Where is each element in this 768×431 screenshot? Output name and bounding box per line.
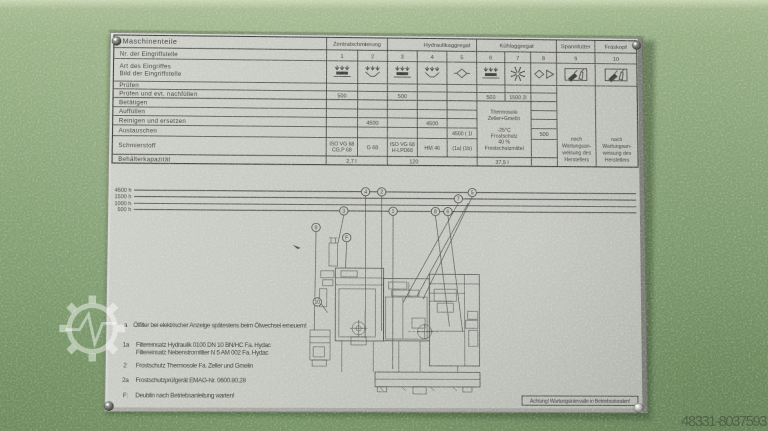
svg-text:7: 7 (457, 197, 460, 203)
svg-text:1500 h: 1500 h (115, 194, 132, 200)
svg-text:Wartungsan-: Wartungsan- (562, 144, 592, 150)
svg-text:HM 46: HM 46 (424, 146, 440, 152)
svg-text:4500 ( 1l: 4500 ( 1l (452, 131, 472, 137)
svg-text:Achtung! Wartungsintervalle i: Achtung! Wartungsintervalle in Betriebss… (530, 399, 630, 405)
svg-text:500: 500 (398, 94, 407, 100)
svg-text:6: 6 (447, 210, 450, 216)
svg-text:500: 500 (540, 132, 549, 138)
svg-text:10: 10 (613, 57, 619, 63)
svg-text:5: 5 (460, 56, 463, 62)
svg-text:Herstellers: Herstellers (564, 157, 589, 163)
svg-text:G 68: G 68 (367, 145, 379, 151)
svg-text:Zeller+Gmelin: Zeller+Gmelin (488, 116, 520, 122)
svg-text:8: 8 (542, 56, 545, 62)
svg-text:CG.P 68: CG.P 68 (332, 147, 352, 153)
svg-text:37,5 l: 37,5 l (495, 160, 508, 166)
svg-text:Auffüllen: Auffüllen (119, 109, 145, 115)
svg-text:Reinigen und ersetzen: Reinigen und ersetzen (119, 118, 186, 125)
svg-text:Fräskopf: Fräskopf (605, 45, 628, 51)
svg-text:H-LPD68: H-LPD68 (392, 148, 413, 154)
svg-text:Frostschutzprüfgerät EMAG-Nr.: Frostschutzprüfgerät EMAG-Nr. 0600.80.28 (135, 377, 246, 384)
svg-text:40 %: 40 % (498, 140, 510, 146)
svg-text:6: 6 (489, 56, 492, 62)
svg-text:Behälterkapazität: Behälterkapazität (118, 157, 170, 163)
svg-text:Art des Eingriffes: Art des Eingriffes (120, 64, 172, 70)
svg-text:Filtereinsatz Nebenstromfilter: Filtereinsatz Nebenstromfilter N 5 AM 00… (136, 349, 269, 357)
svg-text:Schmierstoff: Schmierstoff (118, 143, 156, 149)
svg-text:Hydraulikaggregat: Hydraulikaggregat (424, 43, 471, 49)
svg-text:Frostschutz Thermosole Fa. Zel: Frostschutz Thermosole Fa. Zeller und Gm… (136, 362, 254, 369)
svg-text:Deublin nach Betriebsanleitung: Deublin nach Betriebsanleitung warten! (135, 392, 235, 399)
svg-text:500: 500 (486, 95, 495, 101)
svg-text:Bild der Eingriffstelle: Bild der Eingriffstelle (119, 71, 181, 78)
svg-text:9: 9 (574, 57, 577, 63)
svg-text:nach: nach (611, 137, 622, 143)
svg-text:500: 500 (337, 94, 346, 100)
svg-text:2,7 l: 2,7 l (346, 159, 356, 165)
svg-text:2: 2 (371, 55, 374, 61)
svg-text:3: 3 (342, 209, 345, 215)
svg-text:2: 2 (380, 190, 383, 196)
svg-text:Austauschen: Austauschen (119, 129, 158, 135)
svg-text:Maschinenteile: Maschinenteile (122, 38, 177, 46)
svg-text:500 h: 500 h (117, 207, 131, 213)
svg-text:Zentralschmierung: Zentralschmierung (333, 42, 381, 48)
svg-text:Ölfilter bei elektrischer Anze: Ölfilter bei elektrischer Anzeige spätes… (133, 322, 307, 330)
svg-text:5: 5 (471, 190, 474, 196)
svg-text:weisung des: weisung des (562, 150, 591, 156)
svg-text:8: 8 (434, 209, 437, 215)
svg-text:F: F (345, 235, 348, 241)
svg-text:10: 10 (314, 300, 320, 306)
svg-text:Prüfen: Prüfen (119, 83, 139, 89)
svg-text:4: 4 (364, 190, 367, 196)
svg-text:4: 4 (431, 55, 434, 61)
svg-text:4500: 4500 (366, 121, 378, 127)
svg-text:nach: nach (571, 137, 582, 143)
svg-text:120: 120 (409, 160, 418, 166)
svg-text:Wartungsan-: Wartungsan- (602, 144, 632, 150)
svg-text:4500: 4500 (426, 121, 438, 127)
svg-text:Spannfutter: Spannfutter (561, 44, 591, 50)
svg-text:(1a) (1b): (1a) (1b) (452, 146, 472, 152)
svg-text:9: 9 (315, 225, 318, 231)
svg-text:7: 7 (516, 56, 519, 62)
svg-text:1: 1 (392, 209, 395, 215)
svg-text:Prüfen und evt. nachfüllen: Prüfen und evt. nachfüllen (119, 91, 197, 98)
svg-text:1: 1 (341, 54, 344, 60)
svg-text:Betätigen: Betätigen (119, 100, 148, 106)
svg-text:weisung des: weisung des (603, 151, 632, 157)
svg-text:3: 3 (401, 55, 404, 61)
svg-text:F:: F: (123, 392, 129, 399)
svg-text:1500 2l: 1500 2l (509, 95, 526, 101)
svg-text:Nr. der Eingriffstelle: Nr. der Eingriffstelle (120, 52, 179, 59)
svg-text:Kühlaggregat: Kühlaggregat (499, 43, 534, 49)
svg-text:Filtereinsatz Hydraulik 0100 D: Filtereinsatz Hydraulik 0100 DN 10 BN/HC… (136, 342, 271, 350)
svg-text:Thermosole: Thermosole (490, 110, 517, 116)
svg-text:4500 h: 4500 h (115, 188, 132, 194)
svg-text:Frostschutzmittel: Frostschutzmittel (485, 146, 524, 152)
svg-text:Herstellers: Herstellers (605, 158, 630, 164)
